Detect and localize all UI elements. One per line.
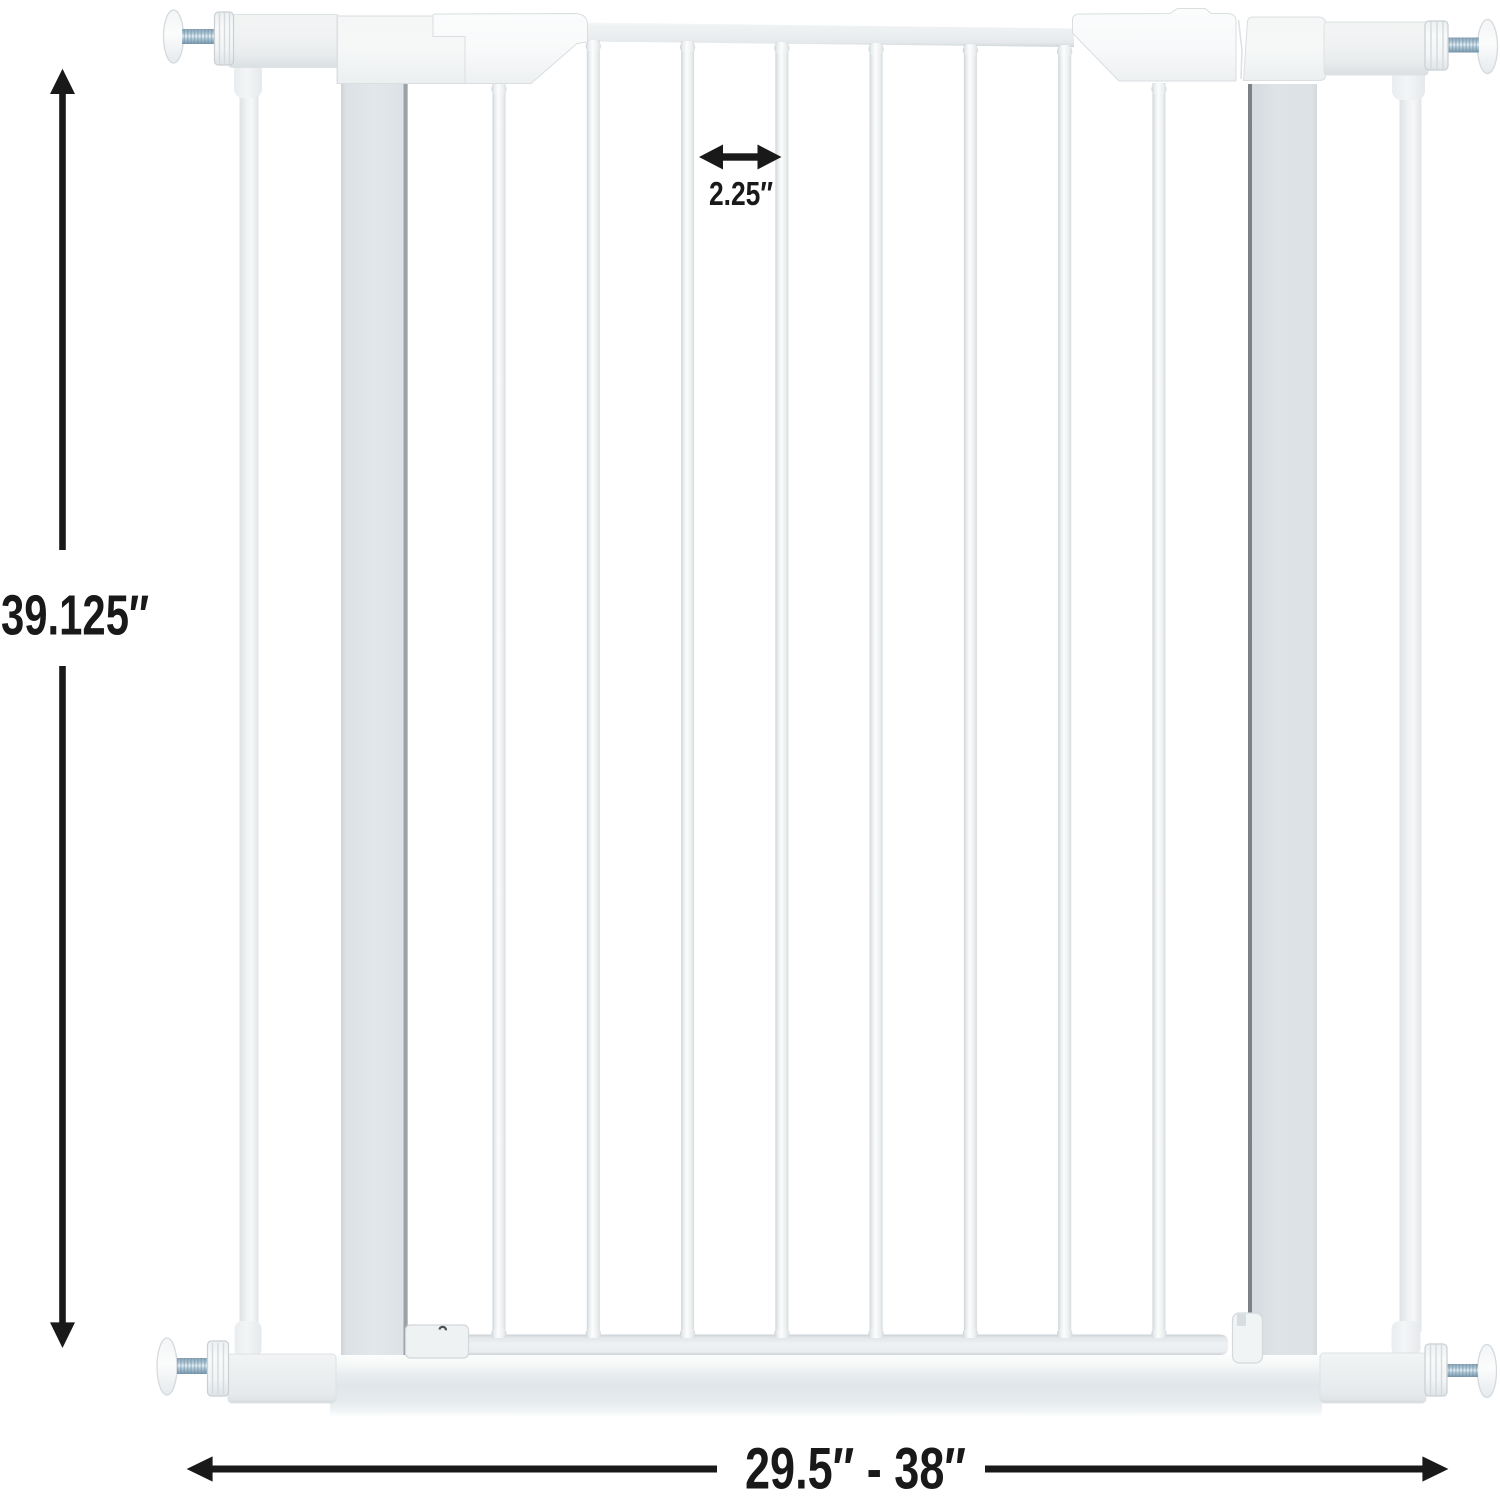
svg-text:2.25″: 2.25″ xyxy=(709,176,773,213)
svg-text:29.5″ - 38″: 29.5″ - 38″ xyxy=(745,1437,966,1500)
svg-text:39.125″: 39.125″ xyxy=(1,584,149,647)
